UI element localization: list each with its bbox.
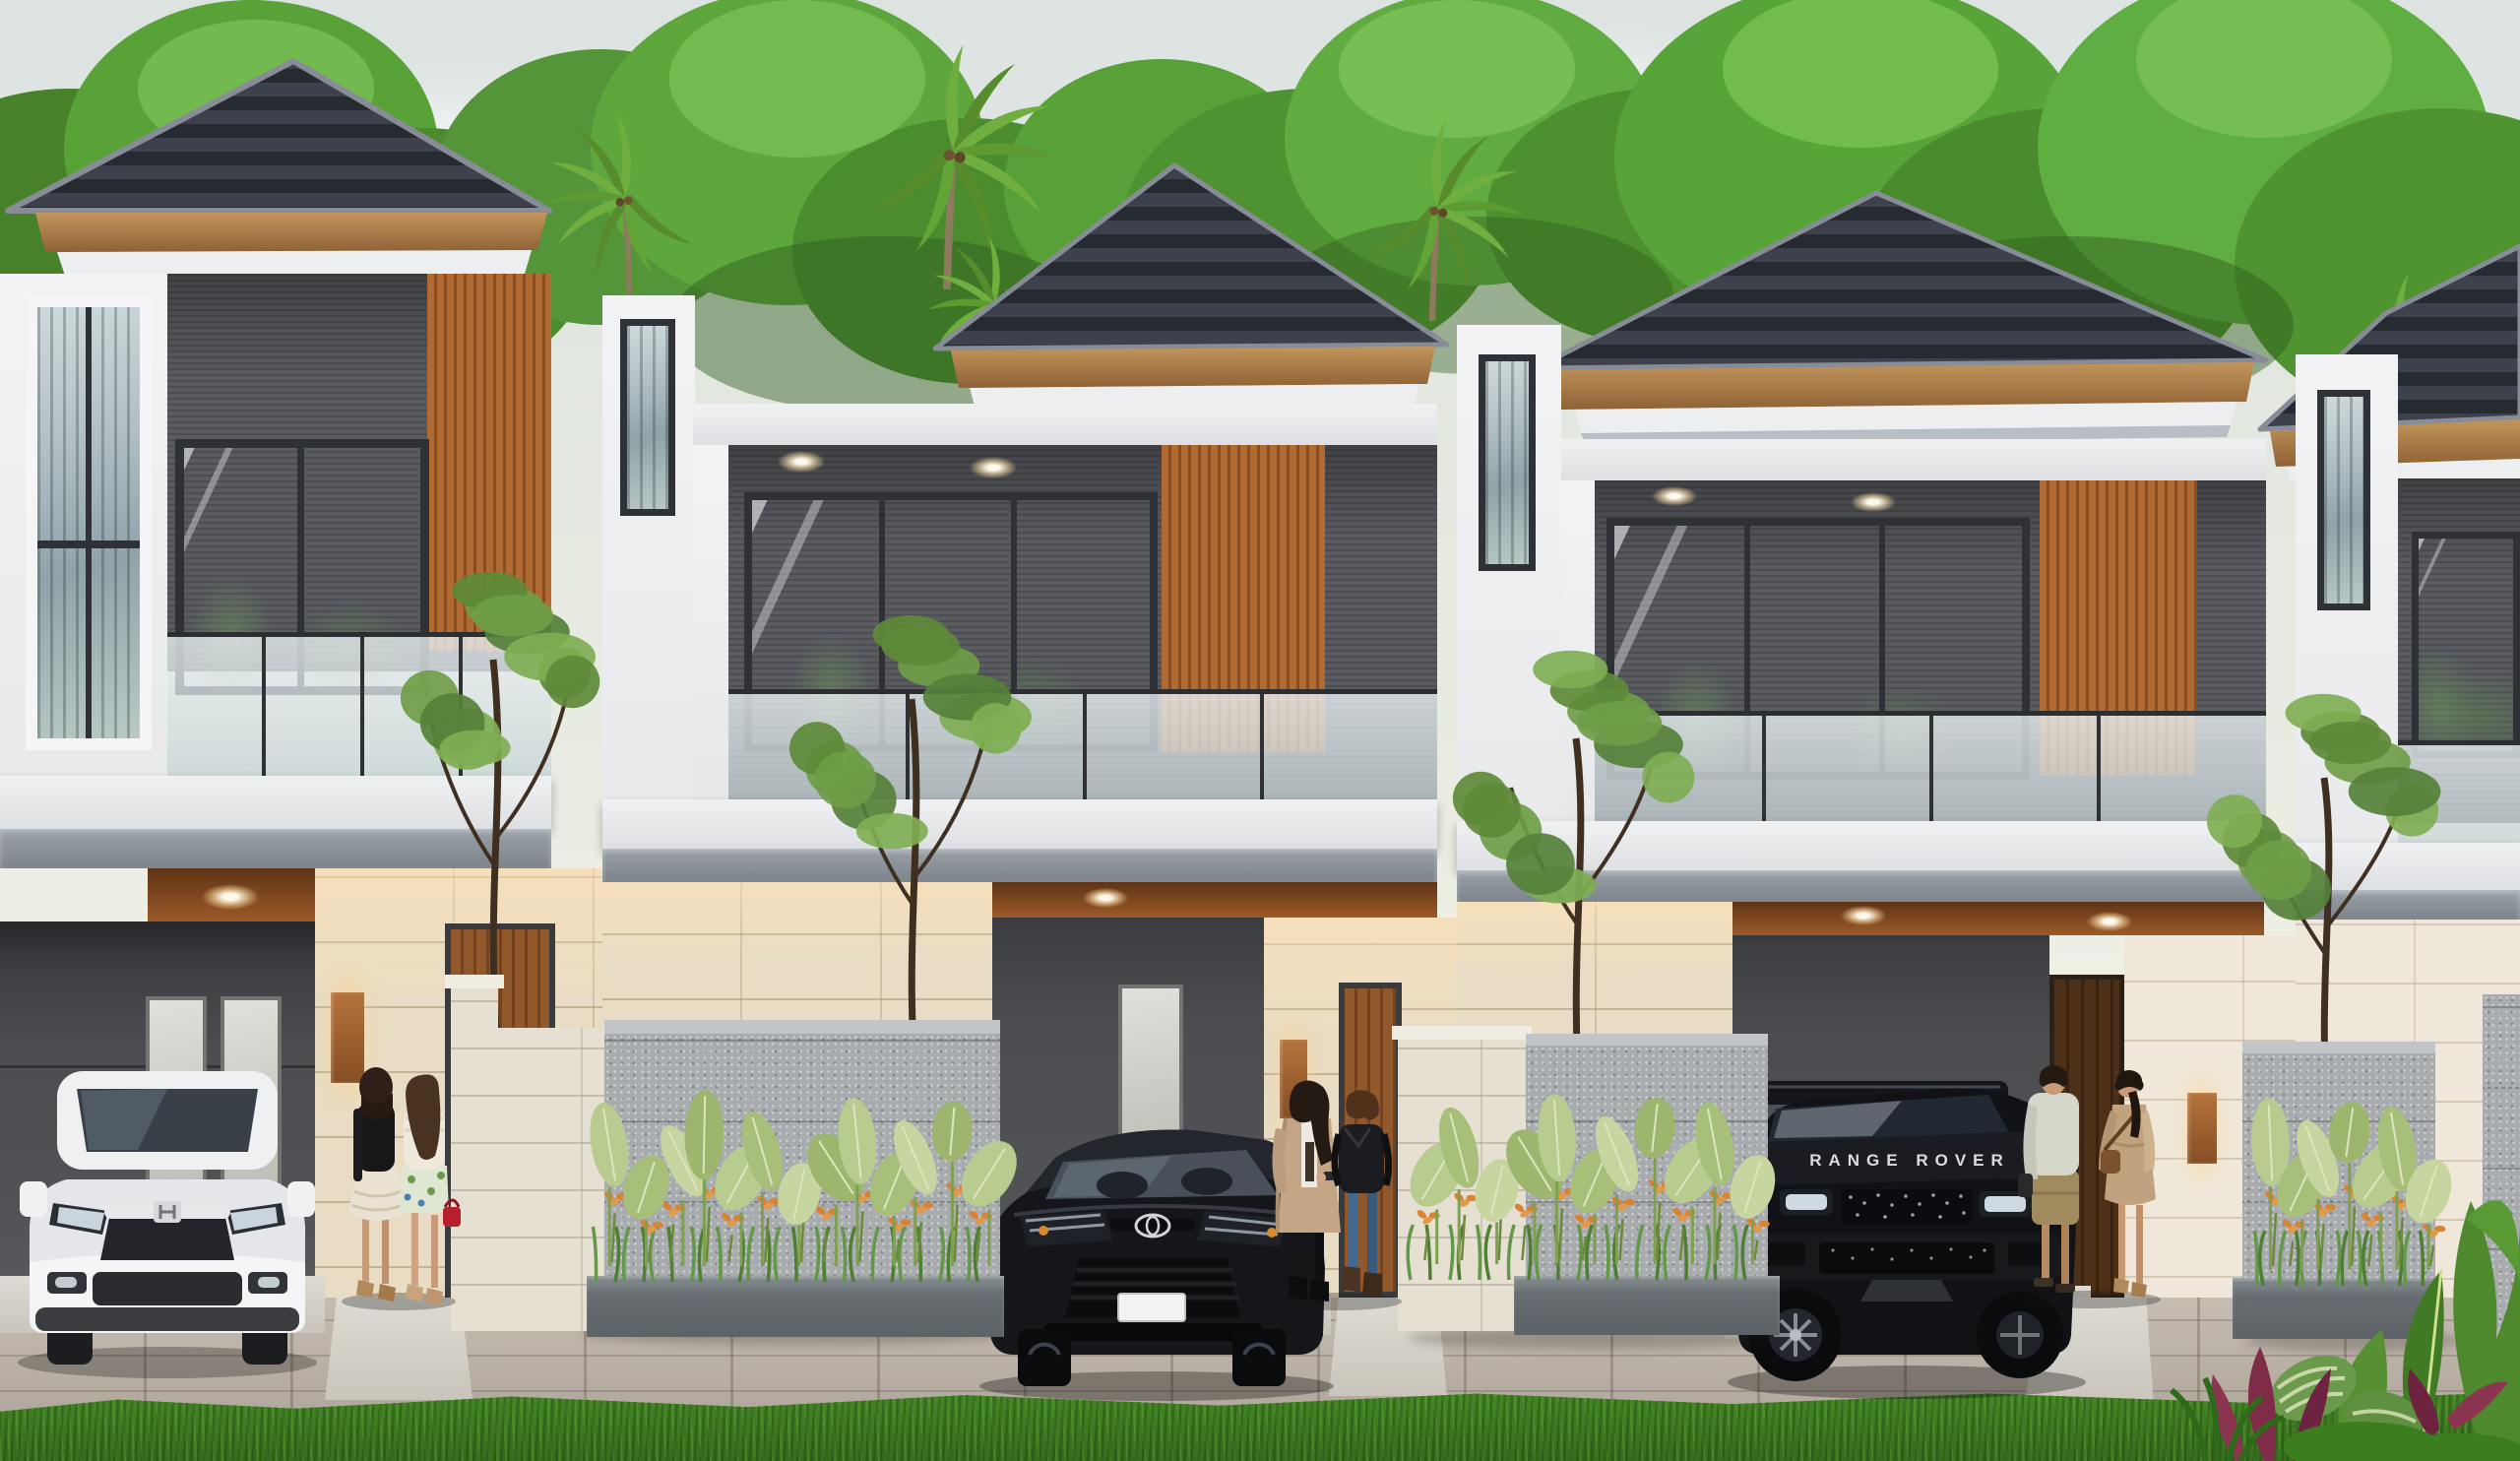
architectural-rendering: RANGE ROVER [0, 0, 2520, 1461]
foreground-plants [0, 0, 2520, 1461]
tropical-plant-cluster [2172, 1200, 2520, 1461]
